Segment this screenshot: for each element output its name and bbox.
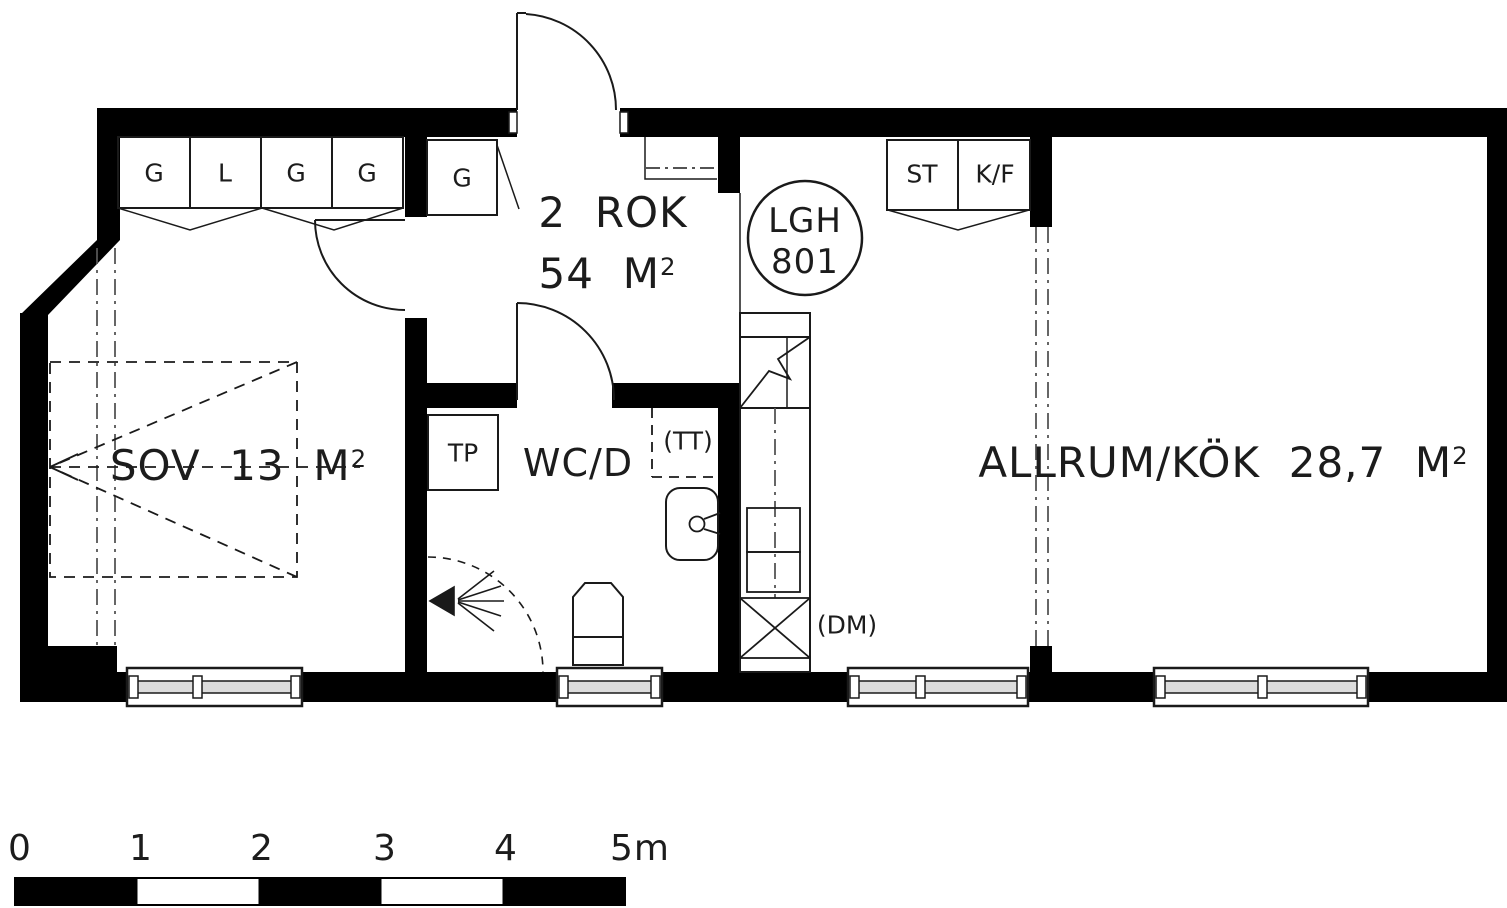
kitchen-window — [848, 668, 1028, 706]
wc-window — [557, 668, 662, 706]
washer-space-label: (TT) — [663, 429, 713, 454]
towel-dryer-label: TP — [448, 441, 478, 466]
shower-icon — [428, 557, 543, 672]
closet-label-3: G — [286, 161, 305, 186]
apartment-area-label: 54 M2 — [539, 253, 676, 295]
zone-divider-top-stub — [1030, 137, 1052, 227]
stove-icon — [740, 337, 810, 408]
scale-bar-graphic — [15, 878, 625, 905]
floor-plan: 2 ROK 54 M2 LGH 801 SOV 13 M2 WC/D ALLRU… — [0, 0, 1507, 908]
scale-label-0: 0 — [8, 831, 32, 867]
upper-left-wall — [97, 108, 120, 240]
right-wall — [1487, 108, 1507, 702]
zone-divider-bottom-stub — [1030, 646, 1052, 672]
wc-top-wall-left — [427, 383, 517, 408]
closet-label-2: L — [218, 161, 232, 186]
bedroom-hall-wall-upper — [405, 137, 427, 217]
scale-label-4: 4 — [494, 831, 518, 867]
scale-label-5m: 5m — [610, 831, 670, 867]
zone-divider-lines — [1036, 227, 1048, 646]
hall-wardrobe — [427, 140, 519, 215]
kitchen-fixtures — [740, 313, 810, 672]
bedroom-door — [315, 220, 405, 310]
closet-label-4: G — [357, 161, 376, 186]
left-wall — [20, 313, 48, 675]
dishwasher-label: (DM) — [817, 613, 877, 638]
sink-icon — [666, 488, 720, 560]
living-window — [1154, 668, 1368, 706]
scale-label-3: 3 — [373, 831, 397, 867]
unit-id-line1: LGH — [768, 204, 842, 238]
apartment-type-label: 2 ROK — [538, 192, 687, 234]
top-wall-left — [97, 108, 517, 137]
dishwasher-icon — [740, 598, 810, 658]
entrance-door — [509, 13, 628, 133]
unit-id-line2: 801 — [771, 245, 839, 279]
scale-label-2: 2 — [250, 831, 274, 867]
hall-niche — [645, 137, 717, 179]
bathroom-label: WC/D — [523, 444, 633, 482]
wc-door — [517, 303, 614, 400]
closet-label-1: G — [144, 161, 163, 186]
toilet-icon — [573, 583, 623, 665]
scale-label-1: 1 — [129, 831, 153, 867]
walls — [20, 108, 1507, 702]
top-wall-right — [620, 108, 1507, 137]
bedroom-window — [127, 668, 302, 706]
wc-kitchen-wall — [718, 383, 740, 672]
hall-kitchen-stub — [718, 137, 740, 193]
chamfer-wall — [20, 240, 120, 315]
fridge-freezer-label: K/F — [975, 162, 1014, 187]
storage-cabinet-label: ST — [906, 162, 937, 187]
living-kitchen-label: ALLRUM/KÖK 28,7 M2 — [978, 442, 1467, 484]
bedroom-label: SOV 13 M2 — [110, 445, 366, 487]
sink-unit-icon — [747, 508, 800, 592]
hall-closet-label: G — [452, 166, 471, 191]
bedroom-wc-wall — [405, 318, 427, 672]
